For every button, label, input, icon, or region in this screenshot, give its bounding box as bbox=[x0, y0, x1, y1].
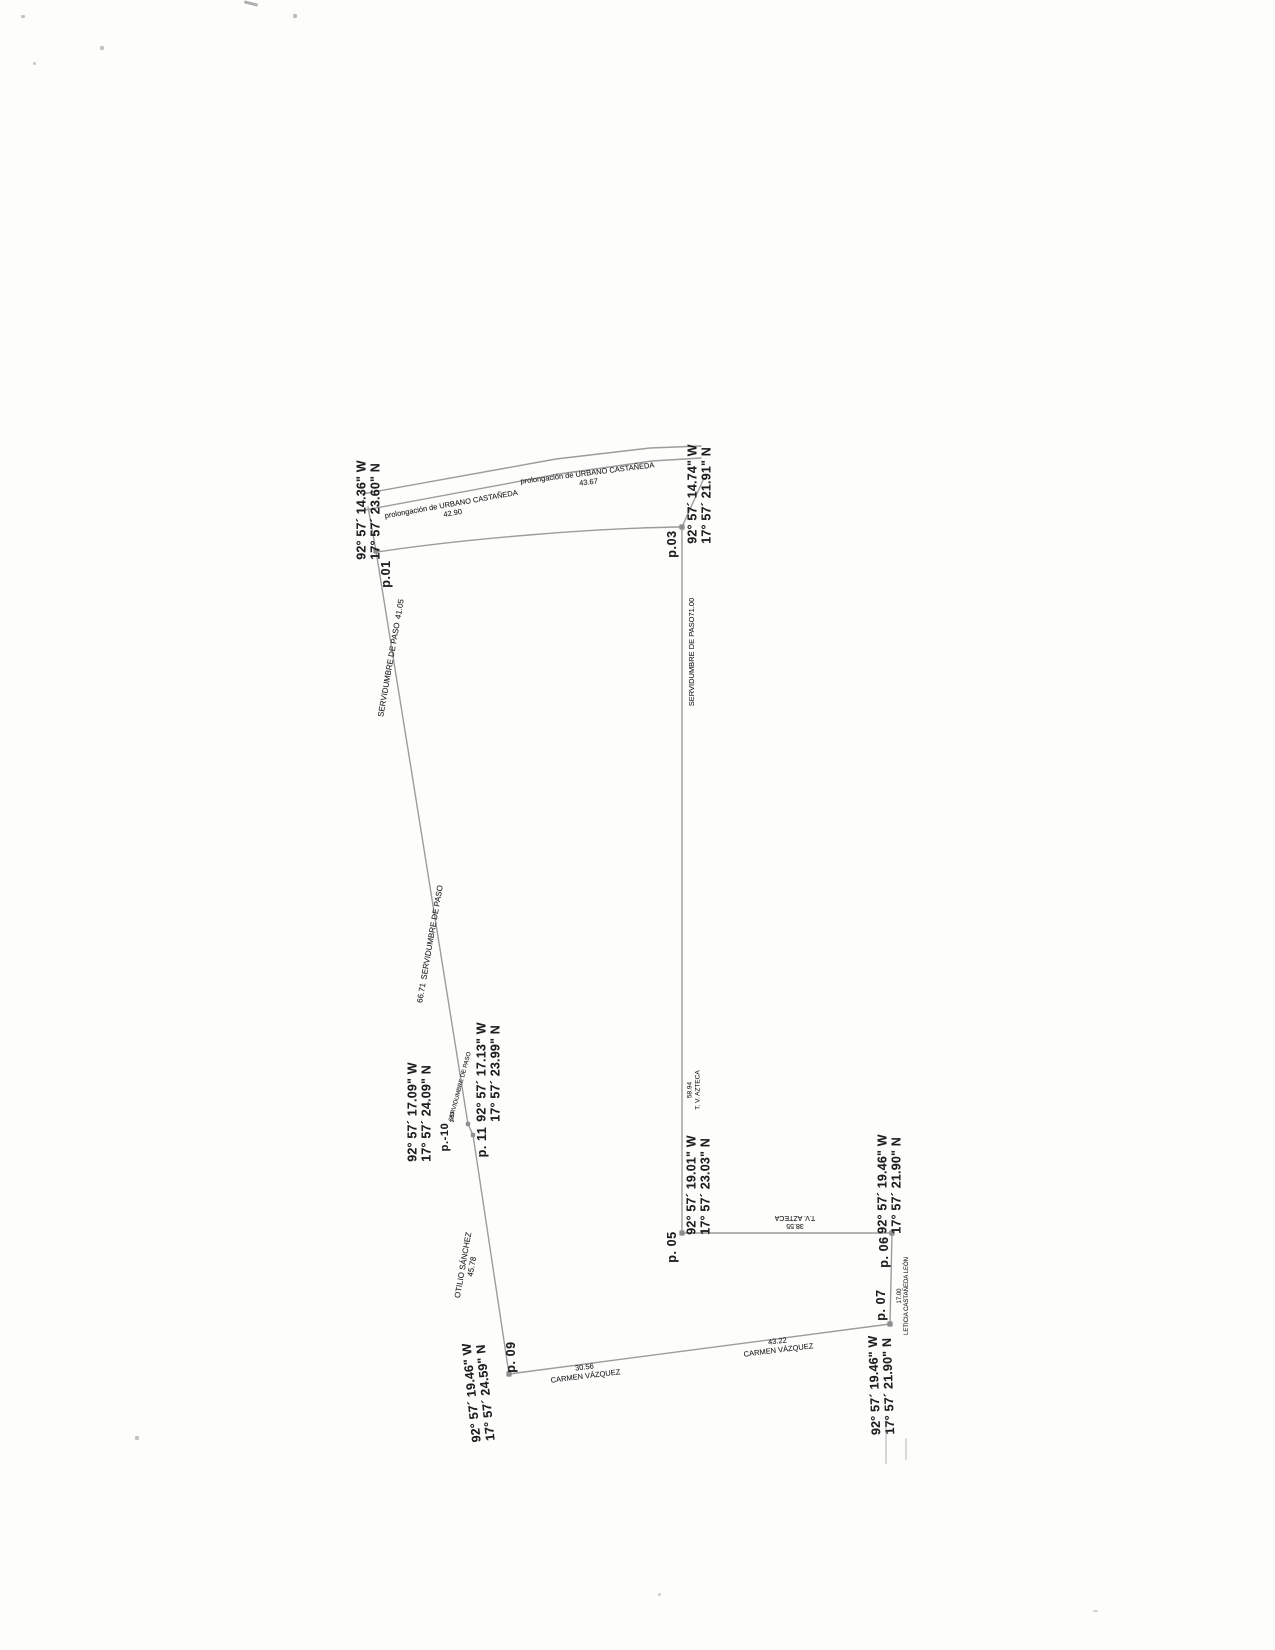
latitude-p06: 17° 57´ 21.90" N bbox=[890, 1134, 904, 1234]
point-label-p01: p.01 bbox=[379, 560, 393, 587]
longitude-p06: 92° 57´ 19.46" W bbox=[877, 1134, 891, 1234]
scan-speck bbox=[1093, 1610, 1098, 1612]
point-coordinates-p05: 92° 57´ 19.01" W 17° 57´ 23.03" N bbox=[686, 1135, 713, 1235]
point-coordinates-p03: 92° 57´ 14.74" W 17° 57´ 21.91" N bbox=[687, 444, 714, 544]
longitude-p11: 92° 57´ 17.13" W bbox=[476, 1022, 490, 1122]
parcel-drawing bbox=[0, 0, 1275, 1650]
point-label-p09: p. 09 bbox=[504, 1341, 518, 1373]
point-label-p11: p. 11 bbox=[475, 1127, 489, 1158]
node-p03 bbox=[680, 525, 685, 530]
longitude-p10: 92° 57´ 17.09" W bbox=[407, 1062, 421, 1162]
edge-name-azteca: T.V. AZTECA bbox=[775, 1213, 816, 1221]
edge-length-east-lower: 58.94 bbox=[687, 1070, 695, 1110]
point-coordinates-p10: 92° 57´ 17.09" W 17° 57´ 24.09" N bbox=[407, 1062, 434, 1162]
point-label-p07: p. 07 bbox=[874, 1289, 888, 1321]
latitude-p03: 17° 57´ 21.91" N bbox=[700, 444, 714, 544]
scan-speck bbox=[905, 1438, 907, 1460]
latitude-p10: 17° 57´ 24.09" N bbox=[420, 1062, 434, 1162]
latitude-p11: 17° 57´ 23.99" N bbox=[489, 1022, 503, 1122]
edge-label-azteca: 38.55 T.V. AZTECA bbox=[775, 1213, 816, 1229]
scan-speck bbox=[293, 14, 297, 18]
point-label-p05: p. 05 bbox=[665, 1231, 679, 1263]
scan-speck bbox=[33, 62, 36, 65]
point-label-p06: p. 06 bbox=[877, 1236, 891, 1268]
scan-speck bbox=[885, 1418, 887, 1464]
node-p07 bbox=[888, 1322, 893, 1327]
point-coordinates-p06: 92° 57´ 19.46" W 17° 57´ 21.90" N bbox=[877, 1134, 904, 1234]
edge-label-east-lower: 58.94 T. V. AZTECA bbox=[687, 1070, 702, 1110]
longitude-p01: 92° 57´ 14.36" W bbox=[356, 460, 370, 560]
scan-speck bbox=[21, 15, 25, 18]
scan-speck bbox=[100, 46, 104, 50]
longitude-p05: 92° 57´ 19.01" W bbox=[686, 1135, 700, 1235]
north-boundary-line bbox=[377, 527, 681, 552]
edge-name-east-lower: T. V. AZTECA bbox=[694, 1070, 702, 1110]
longitude-p03: 92° 57´ 14.74" W bbox=[687, 444, 701, 544]
point-coordinates-p11: 92° 57´ 17.13" W 17° 57´ 23.99" N bbox=[476, 1022, 503, 1122]
edge-length-azteca: 38.55 bbox=[775, 1221, 816, 1229]
point-coordinates-p01: 92° 57´ 14.36" W 17° 57´ 23.60" N bbox=[356, 460, 383, 560]
point-coordinates-p07: 92° 57´ 19.46" W 17° 57´ 21.90" N bbox=[867, 1335, 897, 1435]
latitude-p05: 17° 57´ 23.03" N bbox=[699, 1135, 713, 1235]
latitude-p01: 17° 57´ 23.60" N bbox=[369, 460, 383, 560]
scan-speck bbox=[658, 1593, 661, 1596]
point-label-p10: p.-10 bbox=[439, 1123, 451, 1152]
edge-name-leticia: LETICIA CASTAÑEDA LEÓN bbox=[904, 1257, 911, 1335]
edge-label-east-upper: SERVIDUMBRE DE PASO71.00 bbox=[688, 598, 697, 707]
point-label-p03: p.03 bbox=[665, 530, 679, 557]
node-p11 bbox=[466, 1122, 470, 1126]
scan-speck bbox=[135, 1436, 139, 1440]
edge-length-leticia: 17.00 bbox=[897, 1257, 904, 1335]
edge-name-east-upper: SERVIDUMBRE DE PASO bbox=[687, 617, 696, 707]
edge-length-east-upper: 71.00 bbox=[687, 598, 696, 617]
edge-label-leticia: 17.00 LETICIA CASTAÑEDA LEÓN bbox=[897, 1257, 911, 1335]
edge-length-jog: 2.03 bbox=[450, 1112, 456, 1123]
survey-plat-page: 92° 57´ 14.36" W 17° 57´ 23.60" N p.01 9… bbox=[0, 0, 1275, 1650]
